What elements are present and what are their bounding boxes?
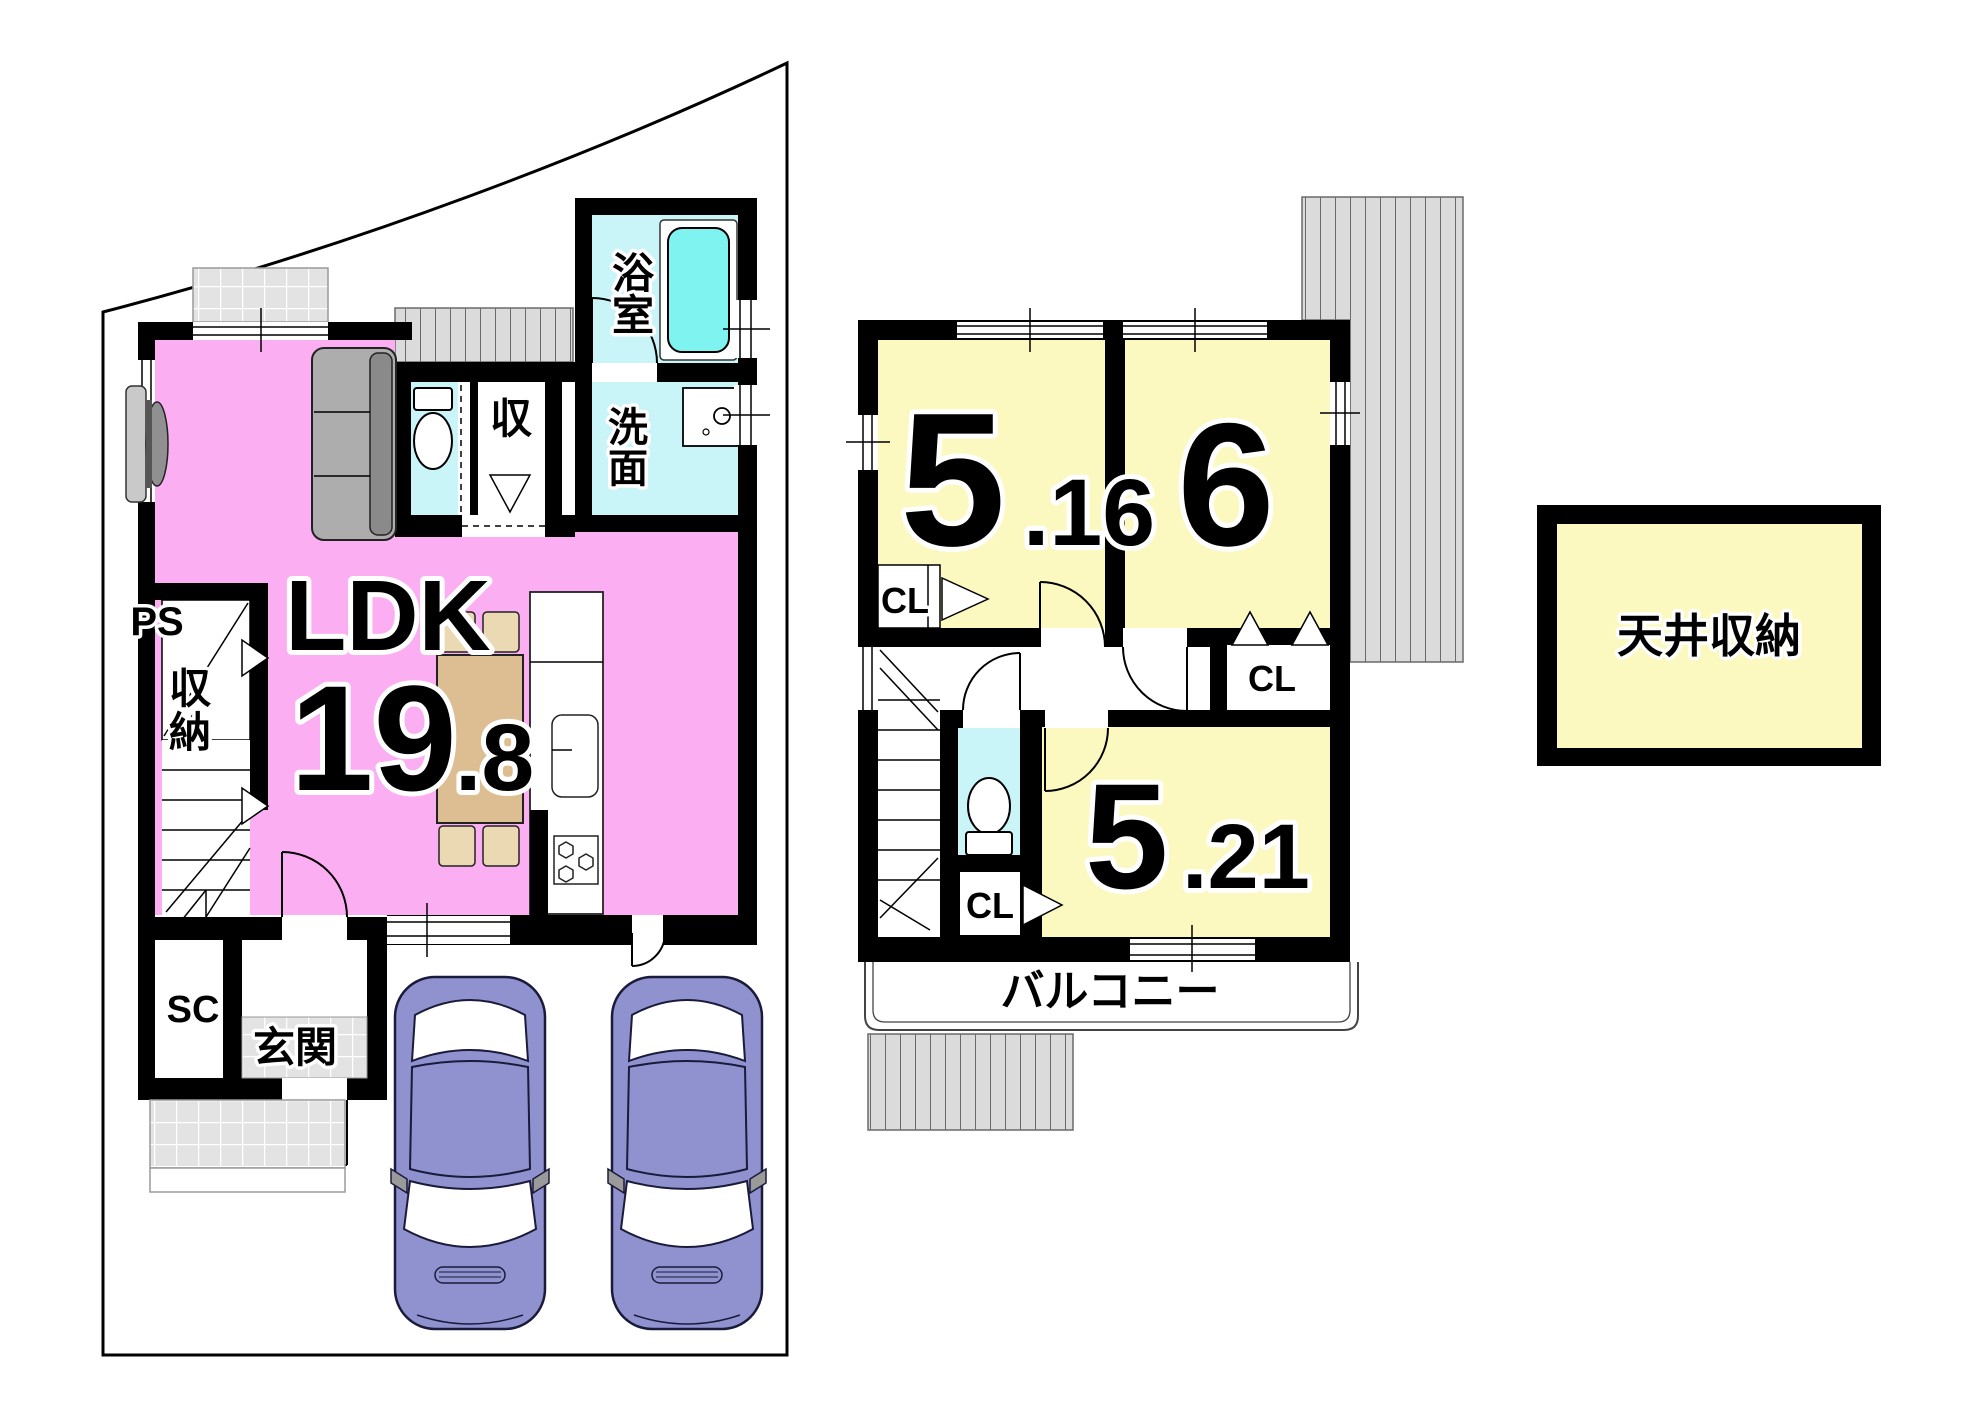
balcony-label: バルコニー xyxy=(1000,967,1219,1016)
closet-a-label: CL xyxy=(881,580,929,621)
car-2 xyxy=(608,977,766,1329)
bedroom-521-door-gap xyxy=(1045,710,1108,728)
kitchen-counter xyxy=(530,592,603,915)
sofa xyxy=(312,348,396,540)
stairwell-2f xyxy=(878,647,940,937)
ldk-area-int: 19 xyxy=(290,654,457,822)
toilet-closet-strip xyxy=(395,362,575,537)
wall-kitchen-stub xyxy=(530,810,548,915)
bathroom-label-line2: 室 xyxy=(612,292,654,339)
floorplan-page: LDK 19 .8 浴 室 洗 面 収 PS 収 納 SC 玄関 xyxy=(0,0,1962,1421)
toilet1f-sliding-door xyxy=(458,382,470,515)
under-stair-storage-label-line2: 納 xyxy=(169,709,211,756)
bathroom-label-line1: 浴 xyxy=(612,250,655,297)
porch-step xyxy=(150,1168,345,1192)
wall-stair-right xyxy=(250,600,268,810)
roof-lower-stripes xyxy=(868,1034,1073,1130)
bedroom-521-area-frac: .21 xyxy=(1182,806,1310,908)
strip-hall xyxy=(562,382,575,515)
bathtub xyxy=(660,220,737,360)
bedroom-6-door-gap xyxy=(1123,628,1187,647)
kitchen-back-door-gap xyxy=(632,915,663,945)
hall-closet-label: 収 xyxy=(490,395,532,442)
side-porch-stripes xyxy=(395,308,573,362)
bedroom-6-area: 6 xyxy=(1177,388,1274,583)
front-door-gap xyxy=(282,1078,347,1100)
window-ldk-bottom xyxy=(387,916,510,944)
kitchen-sink xyxy=(552,715,598,797)
entrance-label: 玄関 xyxy=(253,1024,337,1071)
bath-wash-block xyxy=(575,198,757,532)
closet-c-label: CL xyxy=(1248,658,1296,699)
floor1-plan: LDK 19 .8 浴 室 洗 面 収 PS 収 納 SC 玄関 xyxy=(103,63,787,1355)
pipe-space-label: PS xyxy=(130,600,183,644)
bathroom-door-gap xyxy=(592,363,657,382)
closet-b-label: CL xyxy=(966,885,1014,926)
chair xyxy=(483,826,519,866)
stove xyxy=(554,836,598,884)
attic-label: 天井収納 xyxy=(1617,610,1801,662)
bedroom-516-area-int: 5 xyxy=(900,374,1006,586)
car-1 xyxy=(391,977,549,1329)
washroom-sink xyxy=(683,388,737,446)
toilet1f-fixture xyxy=(414,388,452,469)
porch-tile xyxy=(150,1100,345,1168)
toilet2f-door-gap xyxy=(963,710,1020,728)
toilet2f-fixture xyxy=(966,778,1012,855)
bedroom-516-door-gap xyxy=(1040,628,1105,647)
bedroom-516-area-frac: .16 xyxy=(1023,460,1155,566)
floorplan-drawing: LDK 19 .8 浴 室 洗 面 収 PS 収 納 SC 玄関 xyxy=(0,0,1962,1421)
under-stair-storage-label-line1: 収 xyxy=(169,665,211,712)
ldk-area-frac: .8 xyxy=(455,705,534,811)
window-stair-left xyxy=(858,647,878,710)
attic-storage-box: 天井収納 xyxy=(1537,505,1881,766)
wall-stair-top xyxy=(155,583,268,600)
shoe-closet-label: SC xyxy=(167,989,220,1031)
chair xyxy=(439,826,475,866)
bedroom-521-area-int: 5 xyxy=(1085,752,1168,920)
floor2-plan: 5 .16 6 5 .21 CL CL CL バルコニー xyxy=(846,197,1463,1130)
washroom-label-line2: 面 xyxy=(608,447,648,491)
washroom-label-line1: 洗 xyxy=(608,406,648,450)
hall-door-gap xyxy=(282,917,347,940)
